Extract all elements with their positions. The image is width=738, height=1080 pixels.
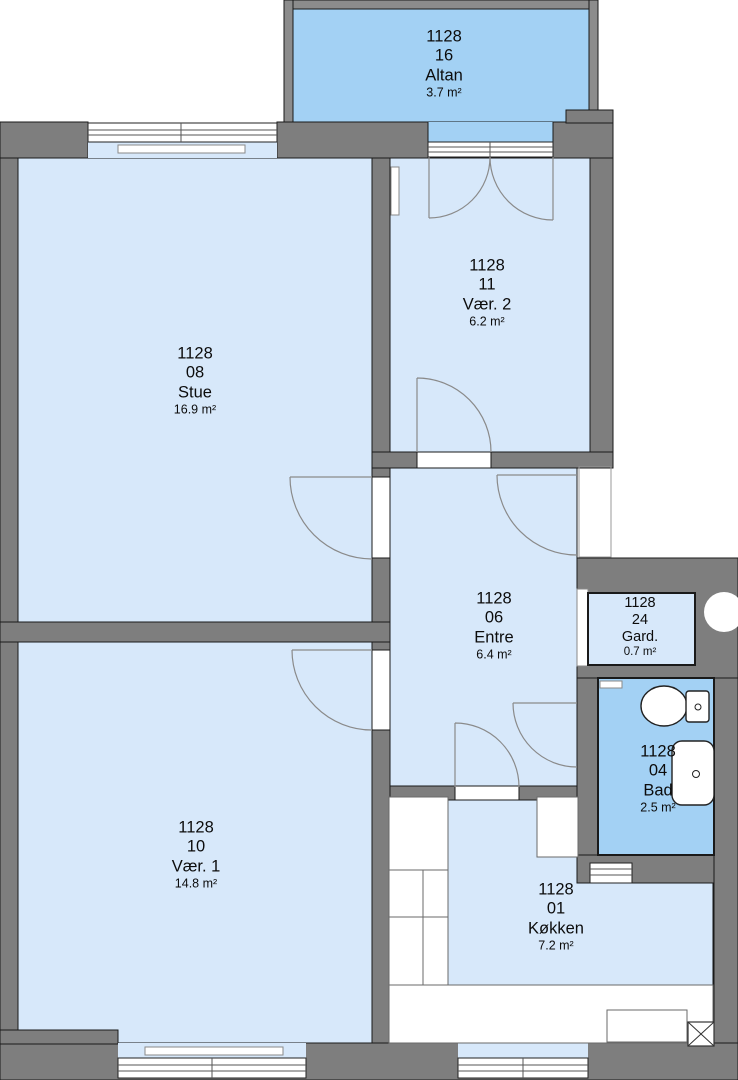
- shaft-box: [688, 1022, 714, 1046]
- balcony-door-frame: [428, 142, 553, 157]
- room-label-vaer2: 1128 11 Vær. 2 6.2 m²: [463, 257, 512, 330]
- sink: [672, 741, 714, 805]
- refrigerator: [537, 797, 578, 857]
- vaer1-radiator: [145, 1047, 283, 1055]
- room-label-gard: 1128 24 Gard. 0.7 m²: [622, 595, 658, 659]
- stue-radiator: [118, 145, 245, 153]
- room-label-bad: 1128 04 Bad 2.5 m²: [640, 743, 675, 816]
- kitchen-appliance: [607, 1010, 687, 1042]
- bad-window: [590, 863, 632, 883]
- koekken-window: [458, 1058, 588, 1078]
- stue-window: [88, 123, 277, 142]
- room-label-koekken: 1128 01 Køkken 7.2 m²: [528, 881, 584, 954]
- toilet: [641, 686, 709, 726]
- floor-plan: 1128 16 Altan 3.7 m² 1128 11 Vær. 2 6.2 …: [0, 0, 738, 1080]
- room-label-stue: 1128 08 Stue 16.9 m²: [174, 345, 216, 418]
- room-altan-doorbay: [428, 122, 553, 142]
- entry-door-opening: [579, 467, 611, 557]
- room-label-vaer1: 1128 10 Vær. 1 14.8 m²: [172, 819, 221, 892]
- vaer1-window: [118, 1058, 306, 1078]
- room-label-entre: 1128 06 Entre 6.4 m²: [474, 590, 513, 663]
- room-label-altan: 1128 16 Altan 3.7 m²: [425, 28, 463, 101]
- vaer2-radiator: [391, 167, 399, 215]
- gard-sliding-door: [577, 589, 588, 666]
- wall-vent: [600, 681, 622, 688]
- floor-plan-drawing: [0, 0, 738, 1080]
